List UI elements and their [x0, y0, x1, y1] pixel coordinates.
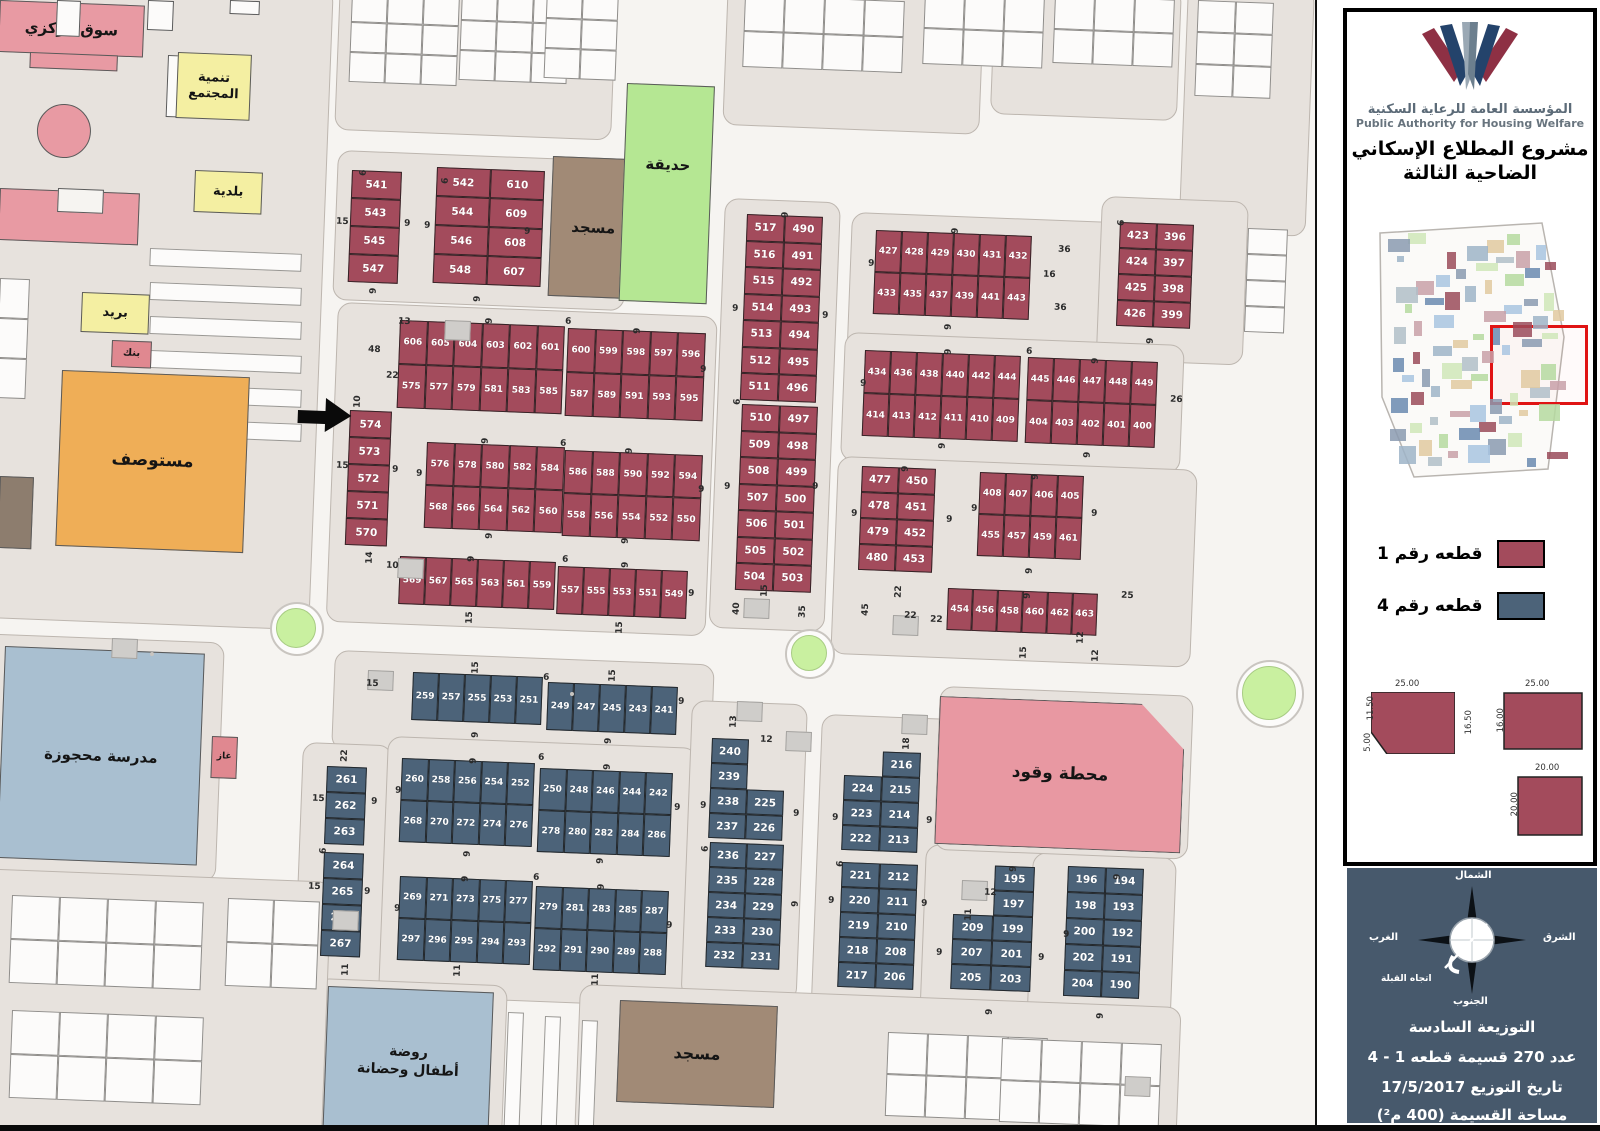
plot-414: 414 [862, 393, 890, 437]
dimension-label: 9 [832, 814, 850, 825]
unassigned-plot [0, 278, 30, 319]
plot-196: 196 [1067, 866, 1106, 893]
dimension-label: 9 [474, 284, 485, 302]
dimension-label: 9 [678, 698, 696, 709]
unassigned-plot [822, 34, 863, 72]
plot-590: 590 [618, 452, 647, 496]
plot-565: 565 [450, 558, 478, 607]
unassigned-plot [459, 50, 496, 81]
plot-560: 560 [534, 489, 563, 533]
dimension-label: 9 [1114, 862, 1125, 880]
plot-219: 219 [839, 912, 878, 938]
unassigned-plot [1092, 31, 1133, 67]
dimension-label: 9 [370, 276, 381, 294]
plot-250: 250 [538, 768, 566, 811]
dimension-label: 9 [486, 306, 497, 324]
plot-212: 212 [879, 863, 918, 889]
plot-592: 592 [646, 453, 675, 497]
dim-500-left: 5.00 [1364, 733, 1373, 752]
minimap-block [1436, 275, 1450, 287]
dimension-label: 15 [336, 462, 354, 473]
unassigned-plot [1000, 1038, 1042, 1082]
legend-item-plot1: قطعه رقم 1 [1377, 540, 1545, 568]
compass-north-label: الشمال [1455, 870, 1492, 881]
dimension-label: 9 [700, 366, 718, 377]
unassigned-plot [744, 0, 785, 33]
plot-586: 586 [563, 450, 592, 494]
minimap-block [1448, 451, 1458, 458]
dimension-label: 9 [1147, 326, 1158, 344]
compass-east-label: الشرق [1543, 932, 1576, 943]
minimap-block [1445, 292, 1460, 310]
plot-198: 198 [1066, 892, 1105, 919]
dimension-label: 9 [732, 305, 750, 316]
plot-210: 210 [877, 913, 916, 939]
building-حديقة: حديقة [619, 83, 715, 304]
minimap-block [1422, 369, 1430, 387]
plot-583: 583 [507, 368, 536, 413]
dimension-label: 6 [837, 849, 848, 867]
plot-278: 278 [537, 810, 565, 853]
distribution-date-line: تاريخ التوزيع 17/5/2017 [1347, 1078, 1597, 1096]
unassigned-plot [58, 1012, 108, 1058]
plot-193: 193 [1104, 893, 1143, 920]
minimap-block [1545, 262, 1556, 270]
plot-578: 578 [453, 443, 482, 487]
minimap-block [1533, 316, 1548, 329]
minimap-block [1465, 286, 1476, 302]
plot-396: 396 [1156, 223, 1194, 250]
dimension-label: 9 [828, 897, 846, 908]
dimension-label: 9 [622, 526, 633, 544]
plot-cluster: 269271273275277297296295294293 [397, 876, 533, 965]
unassigned-plot [580, 49, 617, 80]
dimension-label: 6 [538, 754, 556, 765]
unassigned-plot-grid [922, 0, 1045, 69]
unassigned-plot [1194, 64, 1233, 97]
dimension-label: 9 [1038, 954, 1056, 965]
dimension-label: 6 [360, 158, 371, 176]
plot-264: 264 [323, 852, 364, 880]
overview-minimap [1352, 217, 1587, 489]
plot-444: 444 [993, 355, 1021, 399]
compass-south-label: الجنوب [1453, 996, 1488, 1007]
unassigned-plot [460, 20, 497, 51]
plot-588: 588 [591, 451, 620, 495]
unassigned-plot [1235, 1, 1274, 34]
plot-503: 503 [773, 564, 812, 592]
minimap-block [1550, 381, 1566, 390]
dimension-label: 15 [308, 883, 326, 894]
dimension-label: 6 [533, 874, 551, 885]
dimension-label: 9 [945, 337, 956, 355]
plot-599: 599 [594, 329, 623, 374]
parking-strip [504, 1012, 524, 1127]
plot-290: 290 [586, 930, 614, 973]
plot-430: 430 [952, 233, 980, 276]
minimap-block [1482, 351, 1494, 363]
dimension-label: 9 [792, 889, 803, 907]
plot-246: 246 [591, 770, 619, 813]
dimension-label: 9 [1092, 346, 1103, 364]
plot-cluster: 541543545547 [348, 170, 402, 284]
plot-510: 510 [741, 404, 780, 432]
unassigned-plot [864, 0, 905, 37]
plot-cluster: 576578580582584568566564562560 [424, 442, 565, 533]
dimension-label: 9 [793, 810, 811, 821]
minimap-block [1439, 434, 1448, 448]
location-arrow-head [325, 398, 352, 433]
minimap-block [1510, 393, 1518, 406]
plot-477: 477 [861, 466, 899, 493]
plot-508: 508 [739, 457, 778, 485]
dimension-label: 9 [416, 470, 434, 481]
plot-515: 515 [744, 267, 783, 295]
distribution-info-panel: الشمال الشرق الغرب الجنوب اتجاه القبلة ا… [1347, 868, 1597, 1123]
plot-573: 573 [348, 437, 391, 466]
minimap-block [1493, 328, 1500, 345]
dimension-label: 9 [926, 817, 944, 828]
plot-568: 568 [424, 485, 453, 529]
distribution-title: التوزيعة السادسة [1347, 1018, 1597, 1036]
plot-500: 500 [776, 485, 815, 513]
dimension-label: 9 [524, 228, 542, 239]
plot-229: 229 [744, 893, 782, 919]
dimension-label: 6 [320, 836, 331, 854]
plot-494: 494 [780, 321, 819, 349]
plot-226: 226 [745, 814, 783, 840]
plot-602: 602 [508, 324, 537, 369]
plot-435: 435 [899, 273, 927, 316]
plot-458: 458 [996, 590, 1023, 633]
dimension-label: 9 [392, 466, 410, 477]
dimension-label: 9 [394, 905, 412, 916]
dim-20-top: 20.00 [1535, 764, 1559, 773]
minimap-block [1470, 405, 1486, 422]
unassigned-plot [581, 19, 618, 50]
unassigned-plot [886, 1032, 928, 1076]
plot-242: 242 [644, 772, 672, 815]
plot-216: 216 [882, 751, 921, 777]
dimension-label: 9 [868, 260, 886, 271]
plot-191: 191 [1102, 945, 1141, 972]
plot-291: 291 [559, 929, 587, 972]
plot-228: 228 [745, 868, 783, 894]
minimap-block [1527, 458, 1536, 467]
dimension-label: 9 [1024, 581, 1035, 599]
minimap-block [1405, 304, 1412, 313]
unassigned-plot [10, 1010, 60, 1056]
unassigned-plot [1196, 32, 1235, 65]
dimension-label: 9 [470, 746, 481, 764]
unassigned-plot [1234, 33, 1273, 66]
minimap-block [1479, 422, 1496, 432]
plot-cluster: 600599598597596587589591593595 [565, 328, 706, 421]
minimap-block [1402, 375, 1414, 382]
dimension-label: 10 [354, 390, 365, 408]
plot-507: 507 [738, 483, 777, 511]
plot-600: 600 [566, 328, 595, 373]
plot-595: 595 [675, 376, 704, 421]
plot-cluster: 5174905164915154925144935134945124955114… [740, 214, 823, 402]
utility-box [1124, 1076, 1151, 1097]
unassigned-plot [1002, 31, 1043, 69]
minimap-block [1425, 298, 1444, 305]
plot-495: 495 [779, 348, 818, 376]
compass-qibla-label: اتجاه القبلة [1381, 974, 1432, 984]
dim-16-left: 16.00 [1497, 708, 1506, 732]
plot-545: 545 [349, 226, 400, 256]
minimap-block [1467, 246, 1488, 261]
dimension-label: 9 [598, 872, 609, 890]
plot-255: 255 [463, 674, 491, 723]
plot-295: 295 [450, 920, 478, 963]
plot-257: 257 [437, 673, 465, 722]
minimap-block [1450, 411, 1470, 417]
plot-570: 570 [345, 518, 388, 547]
plot-550: 550 [672, 497, 701, 541]
unassigned-plot [9, 1054, 59, 1100]
minimap-block [1397, 256, 1404, 262]
plot-462: 462 [1046, 592, 1073, 635]
dimension-label: 11 [965, 903, 976, 921]
plot-432: 432 [1004, 235, 1032, 278]
unassigned-plot [925, 1076, 967, 1120]
dimension-label: 14 [366, 546, 377, 564]
minimap-block [1488, 439, 1506, 455]
dimension-label: 9 [364, 888, 382, 899]
plot-497: 497 [779, 405, 818, 433]
minimap-block [1499, 416, 1512, 424]
dimension-label: 12 [1092, 644, 1103, 662]
plot-cluster: 240239238225237226 [708, 738, 786, 841]
plot-192: 192 [1103, 919, 1142, 946]
plot-555: 555 [582, 567, 610, 616]
dimension-label: 9 [622, 550, 633, 568]
plot-581: 581 [479, 367, 508, 412]
utility-box [332, 910, 359, 931]
plot-516: 516 [745, 240, 784, 268]
building-روضة-أطفال-وحضانة: روضة أطفال وحضانة [322, 986, 493, 1131]
plot-267: 267 [320, 930, 361, 958]
dimension-label: 9 [724, 483, 742, 494]
plot-491: 491 [783, 242, 822, 270]
plot-293: 293 [503, 922, 531, 965]
plot-558: 558 [562, 493, 591, 537]
minimap-block [1462, 357, 1478, 371]
plot-221: 221 [841, 862, 880, 888]
minimap-block [1413, 352, 1420, 364]
dimension-label: 15 [366, 680, 384, 691]
plot-584: 584 [535, 446, 564, 490]
plot-277: 277 [504, 880, 532, 923]
minimap-block [1394, 327, 1406, 344]
dimension-label: 9 [851, 510, 869, 521]
dimension-label: 9 [921, 900, 939, 911]
plot-441: 441 [977, 276, 1005, 319]
building-محطة-وقود: محطة وقود [934, 696, 1186, 853]
plot-406: 406 [1030, 474, 1058, 517]
dimension-label: 22 [341, 744, 352, 762]
unassigned-plot [926, 1034, 968, 1078]
unassigned-plot [422, 25, 459, 56]
plot-410: 410 [966, 397, 994, 441]
plot-582: 582 [508, 445, 537, 489]
building-غاز: غاز [210, 736, 238, 779]
plot-288: 288 [639, 932, 667, 975]
unassigned-plot [1054, 0, 1095, 31]
dimension-label: 9 [468, 544, 479, 562]
plot-286: 286 [643, 814, 671, 857]
plot-447: 447 [1078, 359, 1106, 403]
plot-502: 502 [774, 538, 813, 566]
minimap-block [1547, 452, 1568, 459]
minimap-block [1430, 417, 1438, 425]
unassigned-plot-grid [0, 278, 30, 399]
unassigned-plot [544, 48, 581, 79]
dimension-label: 12 [1077, 626, 1088, 644]
plot-397: 397 [1155, 249, 1193, 276]
plot-cluster: 221212220211219210218208217206 [837, 862, 918, 990]
plot-252: 252 [506, 762, 534, 805]
plot-292: 292 [533, 928, 561, 971]
unassigned-plot [784, 0, 825, 34]
dim-1150-left: 11.50 [1367, 696, 1376, 720]
plot-cluster: 574573572571570 [345, 410, 392, 547]
plot-400: 400 [1129, 404, 1157, 448]
site-plan-sheet: 5415435455475426105446095466085486076066… [0, 0, 1600, 1131]
dimension-label: 9 [482, 426, 493, 444]
legend-swatch-plot4 [1497, 592, 1545, 620]
unassigned-plot [496, 21, 533, 52]
dimension-label: 6 [1026, 348, 1044, 359]
unassigned-plot [350, 22, 387, 53]
minimap-block [1473, 334, 1484, 340]
plot-area-line: مساحة القسيمة (400 م²) [1347, 1106, 1597, 1124]
plot-cluster: 408407406405455457459461 [977, 472, 1084, 560]
plot-587: 587 [565, 372, 594, 417]
unassigned-plot [1245, 280, 1286, 308]
dimension-label: 13 [730, 710, 741, 728]
dimension-label: 15 [336, 218, 354, 229]
plot-270: 270 [425, 801, 453, 844]
dimension-label: 22 [386, 372, 404, 383]
roundabout-green [1242, 666, 1296, 720]
minimap-block [1411, 392, 1424, 405]
plot-551: 551 [634, 569, 662, 618]
unassigned-plot [154, 1016, 204, 1062]
minimap-block [1519, 410, 1528, 416]
plot-553: 553 [608, 568, 636, 617]
district-title: الضاحية الثالثة [1347, 162, 1593, 184]
unassigned-plot [153, 944, 203, 990]
plot-452: 452 [896, 519, 934, 546]
unassigned-plot-grid [9, 1010, 204, 1105]
plot-442: 442 [967, 354, 995, 398]
unassigned-plot-grid [1194, 0, 1274, 99]
plot-274: 274 [478, 803, 506, 846]
plot-559: 559 [528, 561, 556, 610]
minimap-block [1419, 440, 1432, 456]
plot-265: 265 [322, 878, 363, 906]
dimension-label: 15 [466, 606, 477, 624]
plot-404: 404 [1025, 400, 1053, 444]
plot-610: 610 [490, 169, 545, 200]
legend-label-plot1: قطعه رقم 1 [1377, 544, 1483, 564]
plot-437: 437 [925, 274, 953, 317]
unassigned-plot [495, 51, 532, 82]
dimension-label: 18 [903, 732, 914, 750]
plot-513: 513 [742, 320, 781, 348]
minimap-block [1513, 322, 1532, 337]
plot-398: 398 [1154, 275, 1192, 302]
plot-cluster: 557555553551549 [556, 566, 688, 619]
plot-214: 214 [880, 801, 919, 827]
minimap-block [1484, 311, 1506, 322]
plot-271: 271 [425, 877, 453, 920]
dimension-label: 22 [895, 580, 906, 598]
building [229, 0, 260, 15]
building [57, 188, 104, 214]
building-بلدية: بلدية [193, 170, 263, 215]
unassigned-plot [349, 52, 386, 83]
plot-603: 603 [481, 323, 510, 368]
plot-575: 575 [397, 364, 426, 409]
dimension-label: 9 [688, 590, 706, 601]
unassigned-plot [862, 36, 903, 74]
plot-490: 490 [784, 215, 823, 243]
plot-607: 607 [487, 256, 542, 287]
unassigned-plot [385, 53, 422, 84]
legend-item-plot4: قطعه رقم 4 [1377, 592, 1545, 620]
plot-511: 511 [740, 373, 779, 401]
unassigned-plot [105, 943, 155, 989]
plot-579: 579 [452, 366, 481, 411]
minimap-block [1496, 257, 1514, 263]
plot-543: 543 [350, 198, 401, 228]
unassigned-plot [1080, 1041, 1122, 1085]
unassigned-plot-grid [1052, 0, 1175, 68]
minimap-block [1396, 287, 1418, 303]
minimap-block [1525, 268, 1540, 278]
dimension-label: 15 [609, 664, 620, 682]
dimension-label: 6 [442, 166, 453, 184]
dimension-label: 9 [666, 922, 684, 933]
project-title: مشروع المطلاع الإسكاني [1347, 138, 1593, 160]
unassigned-plot [423, 0, 460, 26]
location-arrow-shaft [298, 410, 328, 424]
unassigned-plot [1197, 0, 1236, 33]
plot-247: 247 [572, 683, 600, 732]
unassigned-plot-grid [742, 0, 905, 73]
minimap-block [1507, 234, 1520, 245]
dimension-label: 9 [812, 483, 830, 494]
plot-493: 493 [781, 295, 820, 323]
dimension-label: 12 [984, 889, 1002, 900]
plot-580: 580 [480, 444, 509, 488]
unassigned-plot [57, 1056, 107, 1102]
plot-254: 254 [480, 761, 508, 804]
minimap-block [1416, 281, 1434, 295]
minimap-block [1471, 374, 1488, 381]
plot-218: 218 [838, 937, 877, 963]
minimap-block [1530, 387, 1550, 398]
plot-433: 433 [873, 272, 901, 315]
plot-480: 480 [858, 544, 896, 571]
roundabout-green [276, 608, 316, 648]
building-بنك: بنك [111, 340, 152, 369]
unassigned-plot [885, 1074, 927, 1118]
